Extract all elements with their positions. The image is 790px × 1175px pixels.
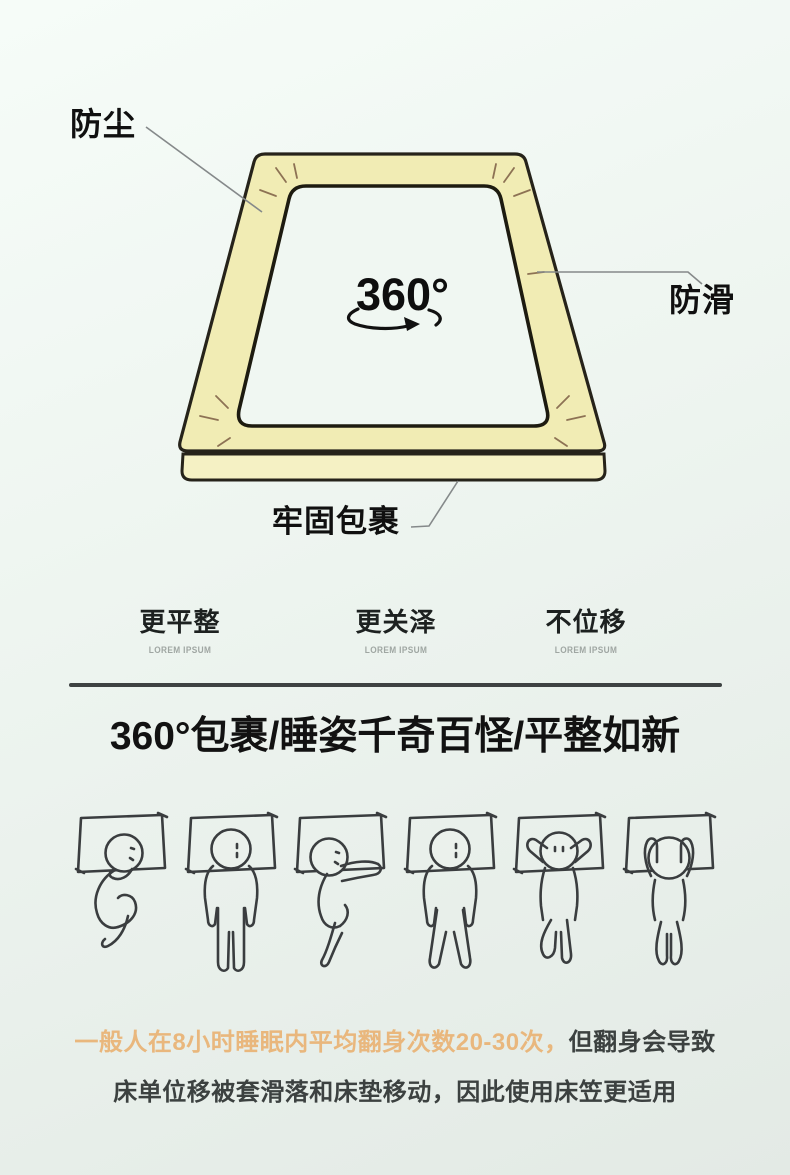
feature-item-no-shift: 不位移 LOREM IPSUM (506, 602, 666, 655)
feature-label: 更平整 (100, 602, 260, 639)
headline: 360°包裹/睡姿千奇百怪/平整如新 (0, 705, 790, 761)
footer-line-2: 床单位移被套滑落和床垫移动，因此使用床笠更适用 (0, 1072, 790, 1107)
footer-highlight-text: 一般人在8小时睡眠内平均翻身次数20-30次， (74, 1029, 568, 1056)
sleep-pose-back-legs-apart-icon (401, 806, 499, 994)
rotation-arrow-icon (344, 307, 446, 333)
page-root: 防尘 防滑 牢固包裹 360° 更平整 LOREM IPSUM 更关泽 LORE… (0, 0, 790, 1175)
feature-subtitle: LOREM IPSUM (106, 645, 253, 655)
sleep-pose-fetal-icon (72, 806, 170, 994)
sleep-pose-hands-behind-head-icon (510, 806, 608, 994)
mattress-band (182, 454, 605, 480)
sleep-pose-arms-raised-icon (620, 806, 718, 994)
wrap-leader-line (411, 481, 458, 527)
feature-item-flat: 更平整 LOREM IPSUM (100, 602, 260, 655)
sleep-pose-pillow-hug-icon (291, 806, 389, 994)
footer-line-1: 一般人在8小时睡眠内平均翻身次数20-30次，但翻身会导致 (0, 1022, 790, 1057)
feature-label: 更关泽 (316, 602, 476, 639)
footer-rest-text: 但翻身会导致 (569, 1029, 716, 1056)
feature-label: 不位移 (506, 602, 666, 639)
feature-subtitle: LOREM IPSUM (512, 645, 659, 655)
feature-subtitle: LOREM IPSUM (322, 645, 469, 655)
sleep-pose-back-straight-icon (182, 806, 280, 994)
sleep-pose-row (72, 806, 718, 996)
feature-item-luster: 更关泽 LOREM IPSUM (316, 602, 476, 655)
dustproof-label: 防尘 (70, 108, 136, 140)
wrap-label: 牢固包裹 (272, 506, 400, 537)
antislip-label: 防滑 (669, 284, 735, 316)
section-divider (69, 683, 722, 687)
